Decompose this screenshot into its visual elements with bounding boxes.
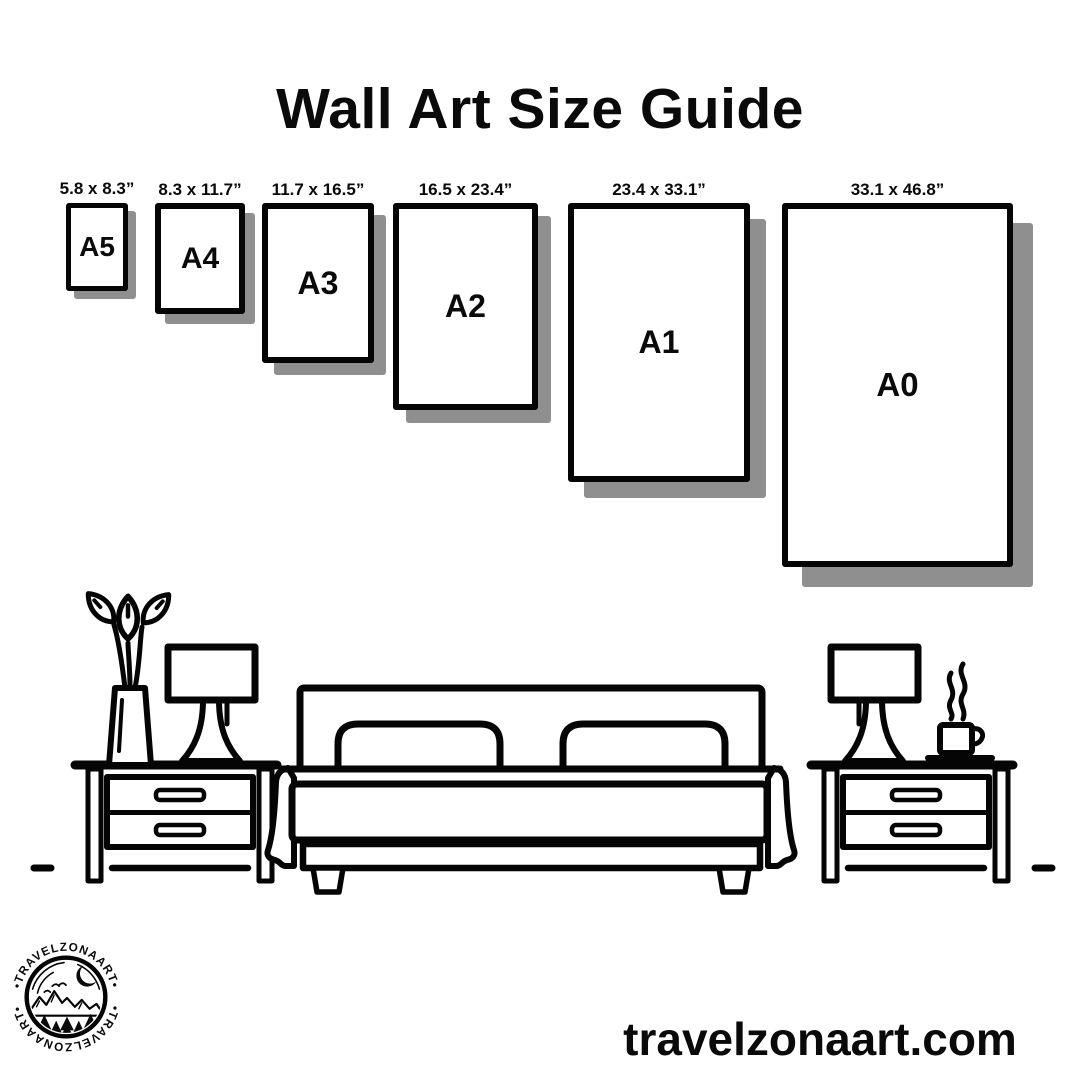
paper-a3: 11.7 x 16.5” A3: [262, 203, 374, 363]
coffee-cup: [928, 664, 992, 758]
size-code: A2: [445, 288, 486, 325]
size-code: A1: [639, 324, 680, 361]
website-text: travelzonaart.com: [560, 1012, 1080, 1066]
table-lamp-left: [168, 647, 255, 761]
brand-logo-icon: •TRAVELZONAART• •TRAVELZONAART•: [7, 938, 125, 1056]
size-code: A4: [181, 242, 219, 276]
size-dimensions-label: 33.1 x 46.8”: [851, 180, 945, 200]
paper-a1: 23.4 x 33.1” A1: [568, 203, 750, 482]
size-dimensions-label: 5.8 x 8.3”: [60, 179, 135, 199]
table-lamp-right: [831, 647, 918, 761]
size-dimensions-label: 16.5 x 23.4”: [419, 180, 513, 200]
pillow-left: [338, 724, 500, 772]
size-code: A3: [298, 265, 339, 302]
nightstand-left: [75, 765, 277, 881]
paper-a4: 8.3 x 11.7” A4: [155, 203, 245, 314]
nightstand-right: [811, 765, 1013, 881]
paper-a0: 33.1 x 46.8” A0: [782, 203, 1013, 567]
steam-icon: [949, 673, 952, 719]
bed-leg: [313, 868, 343, 892]
size-dimensions-label: 8.3 x 11.7”: [158, 180, 241, 200]
paper-a2: 16.5 x 23.4” A2: [393, 203, 538, 410]
size-code: A0: [876, 366, 918, 404]
bed: [267, 688, 794, 892]
paper-a5: 5.8 x 8.3” A5: [66, 203, 128, 291]
flower-vase: [82, 588, 175, 765]
pillow-right: [563, 724, 725, 772]
size-dimensions-label: 23.4 x 33.1”: [612, 180, 706, 200]
page-title: Wall Art Size Guide: [0, 76, 1080, 142]
bed-leg: [719, 868, 749, 892]
bedroom-illustration: [30, 588, 1060, 908]
size-dimensions-label: 11.7 x 16.5”: [272, 180, 365, 200]
size-code: A5: [79, 231, 115, 263]
steam-icon: [961, 664, 965, 719]
